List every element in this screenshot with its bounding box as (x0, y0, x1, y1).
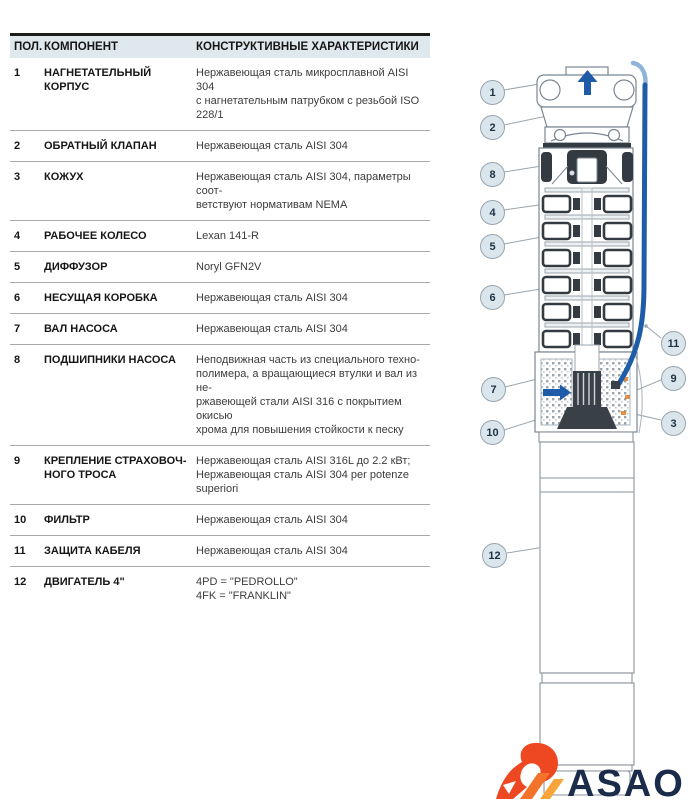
components-table: ПОЛ. КОМПОНЕНТ КОНСТРУКТИВНЫЕ ХАРАКТЕРИС… (10, 33, 430, 611)
ear-hole-right (614, 80, 634, 100)
callout-label: 6 (489, 292, 495, 304)
callout-9: 9 (661, 366, 686, 391)
row-pos: 7 (14, 322, 44, 336)
callout-4: 4 (480, 200, 505, 225)
header-component: КОМПОНЕНТ (44, 41, 196, 53)
row-pos: 10 (14, 513, 44, 527)
row-characteristics: Noryl GFN2V (196, 260, 426, 274)
row-characteristics: Нержавеющая сталь AISI 304 (196, 513, 426, 527)
table-row: 12 ДВИГАТЕЛЬ 4" 4PD = "PEDROLLO" 4FK = "… (10, 567, 430, 611)
row-component: КОЖУХ (44, 170, 196, 212)
row-pos: 9 (14, 454, 44, 496)
callout-3: 3 (661, 411, 686, 436)
callout-label: 9 (670, 373, 676, 385)
table-row: 9 КРЕПЛЕНИЕ СТРАХОВОЧ- НОГО ТРОСА Нержав… (10, 446, 430, 505)
table-row: 6 НЕСУЩАЯ КОРОБКА Нержавеющая сталь AISI… (10, 283, 430, 314)
logo-text: ASAO (567, 769, 685, 799)
row-characteristics: Нержавеющая сталь AISI 304 (196, 322, 426, 336)
callout-label: 5 (489, 241, 495, 253)
row-component: ДИФФУЗОР (44, 260, 196, 274)
callout-12: 12 (482, 543, 507, 568)
row-pos: 8 (14, 353, 44, 437)
header-characteristics: КОНСТРУКТИВНЫЕ ХАРАКТЕРИСТИКИ (196, 41, 426, 53)
table-row: 4 РАБОЧЕЕ КОЛЕСО Lexan 141-R (10, 221, 430, 252)
row-component: РАБОЧЕЕ КОЛЕСО (44, 229, 196, 243)
row-characteristics: Нержавеющая сталь AISI 304 (196, 139, 426, 153)
pump-diagram: 1 2 3 4 5 6 7 8 9 10 11 12 (455, 55, 694, 800)
row-characteristics: Нержавеющая сталь AISI 316L до 2.2 кВт; … (196, 454, 426, 496)
callout-11: 11 (661, 331, 686, 356)
table-row: 1 НАГНЕТАТЕЛЬНЫЙ КОРПУС Нержавеющая стал… (10, 58, 430, 131)
row-characteristics: 4PD = "PEDROLLO" 4FK = "FRANKLIN" (196, 575, 426, 603)
callout-label: 7 (490, 384, 496, 396)
callout-label: 4 (489, 207, 495, 219)
callout-2: 2 (480, 115, 505, 140)
row-component: ПОДШИПНИКИ НАСОСА (44, 353, 196, 437)
table-row: 3 КОЖУХ Нержавеющая сталь AISI 304, пара… (10, 162, 430, 221)
table-row: 10 ФИЛЬТР Нержавеющая сталь AISI 304 (10, 505, 430, 536)
row-characteristics: Нержавеющая сталь AISI 304 (196, 291, 426, 305)
asao-logo-icon (490, 741, 564, 799)
callout-10: 10 (480, 420, 505, 445)
table-row: 5 ДИФФУЗОР Noryl GFN2V (10, 252, 430, 283)
row-pos: 11 (14, 544, 44, 558)
row-component: НЕСУЩАЯ КОРОБКА (44, 291, 196, 305)
row-component: ЗАЩИТА КАБЕЛЯ (44, 544, 196, 558)
row-pos: 6 (14, 291, 44, 305)
callout-label: 2 (489, 122, 495, 134)
table-header-row: ПОЛ. КОМПОНЕНТ КОНСТРУКТИВНЫЕ ХАРАКТЕРИС… (10, 33, 430, 58)
row-characteristics: Неподвижная часть из специального техно-… (196, 353, 426, 437)
head-taper (541, 107, 633, 127)
row-component: ФИЛЬТР (44, 513, 196, 527)
callout-label: 11 (668, 338, 680, 350)
callout-label: 3 (670, 418, 676, 430)
table-row: 8 ПОДШИПНИКИ НАСОСА Неподвижная часть из… (10, 345, 430, 446)
row-characteristics: Нержавеющая сталь AISI 304, параметры со… (196, 170, 426, 212)
callout-7: 7 (481, 377, 506, 402)
ear-hole-left (540, 80, 560, 100)
row-component: НАГНЕТАТЕЛЬНЫЙ КОРПУС (44, 66, 196, 122)
callout-label: 12 (488, 550, 500, 562)
callout-1: 1 (480, 80, 505, 105)
row-characteristics: Lexan 141-R (196, 229, 426, 243)
row-component: ОБРАТНЫЙ КЛАПАН (44, 139, 196, 153)
check-valve (543, 127, 631, 148)
row-pos: 1 (14, 66, 44, 122)
callout-8: 8 (480, 162, 505, 187)
row-pos: 2 (14, 139, 44, 153)
datasheet-page: ПОЛ. КОМПОНЕНТ КОНСТРУКТИВНЫЕ ХАРАКТЕРИС… (0, 0, 694, 800)
asao-logo: ASAO (490, 741, 685, 799)
callout-label: 1 (489, 87, 495, 99)
header-pos: ПОЛ. (14, 41, 44, 53)
table-row: 11 ЗАЩИТА КАБЕЛЯ Нержавеющая сталь AISI … (10, 536, 430, 567)
callout-label: 8 (489, 169, 495, 181)
row-component: ДВИГАТЕЛЬ 4" (44, 575, 196, 603)
callout-label: 10 (486, 427, 498, 439)
row-characteristics: Нержавеющая сталь микросплавной AISI 304… (196, 66, 426, 122)
row-component: ВАЛ НАСОСА (44, 322, 196, 336)
row-pos: 3 (14, 170, 44, 212)
callout-5: 5 (480, 234, 505, 259)
callout-6: 6 (480, 285, 505, 310)
table-row: 2 ОБРАТНЫЙ КЛАПАН Нержавеющая сталь AISI… (10, 131, 430, 162)
table-row: 7 ВАЛ НАСОСА Нержавеющая сталь AISI 304 (10, 314, 430, 345)
row-component: КРЕПЛЕНИЕ СТРАХОВОЧ- НОГО ТРОСА (44, 454, 196, 496)
row-pos: 4 (14, 229, 44, 243)
row-pos: 5 (14, 260, 44, 274)
row-pos: 12 (14, 575, 44, 603)
row-characteristics: Нержавеющая сталь AISI 304 (196, 544, 426, 558)
suction-filter (535, 345, 642, 433)
